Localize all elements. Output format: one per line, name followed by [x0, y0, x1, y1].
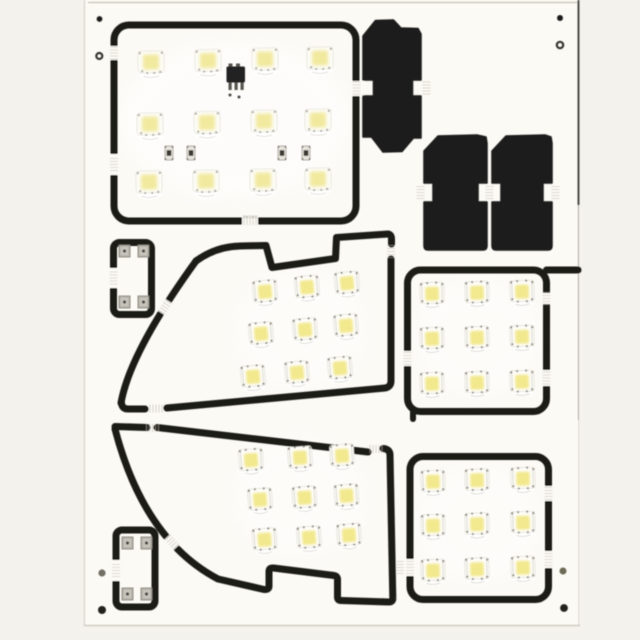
svg-text:ZW1802: ZW1802	[242, 214, 258, 219]
